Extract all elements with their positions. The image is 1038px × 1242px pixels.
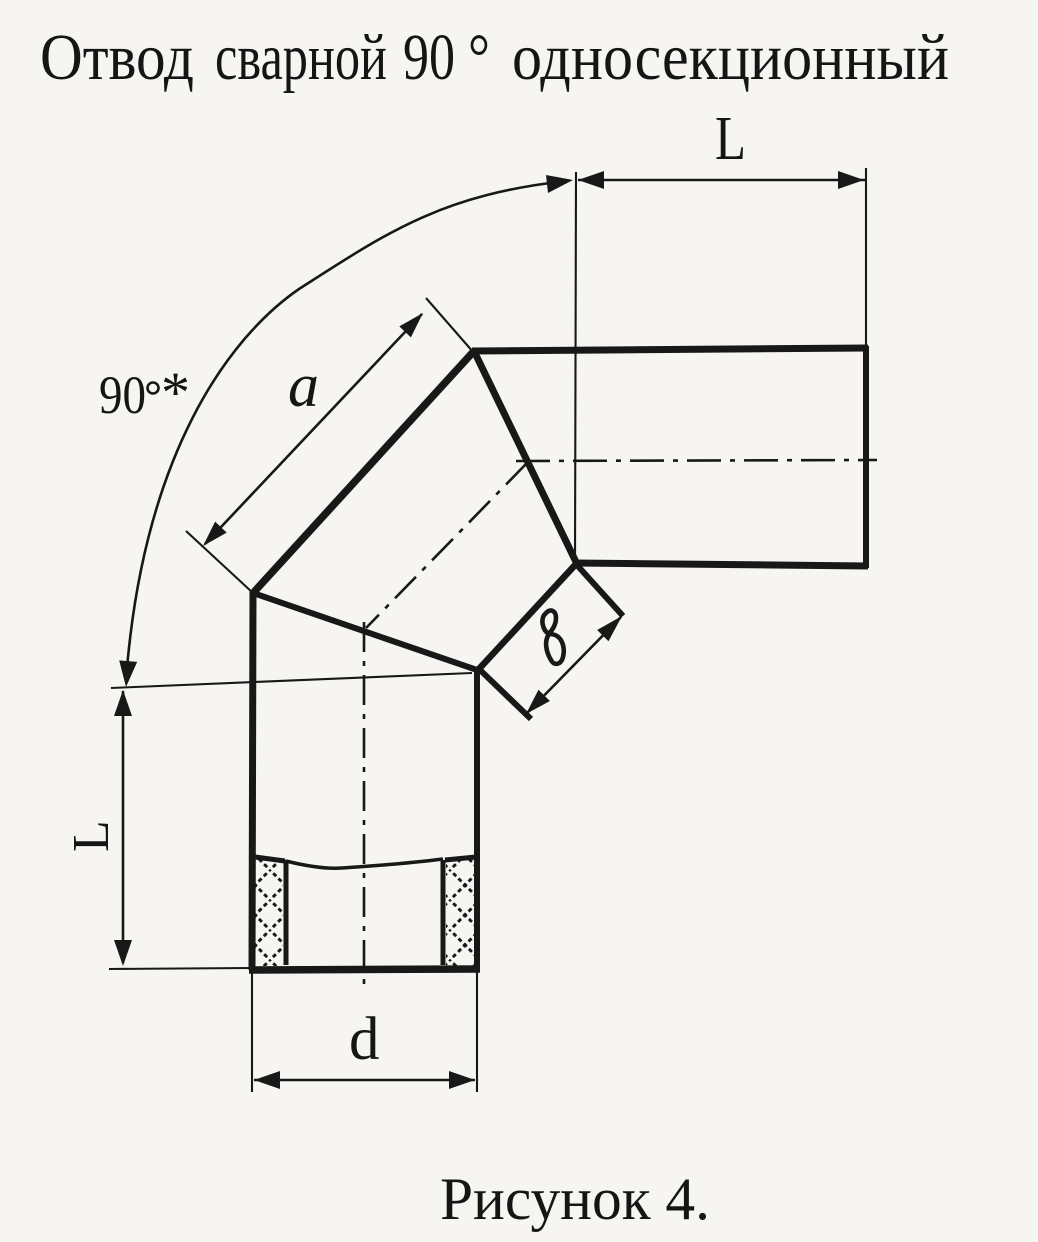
svg-text:°: ° [468,21,490,94]
svg-text:Рисунок 4.: Рисунок 4. [440,1166,710,1232]
svg-text:90: 90 [99,365,146,425]
svg-text:d: d [349,1006,380,1073]
svg-text:*: * [161,360,190,425]
svg-text:L: L [63,820,120,852]
svg-text:Отвод: Отвод [40,21,194,94]
svg-text:сварной: сварной [215,21,387,94]
svg-text:90: 90 [403,21,455,94]
svg-text:a: a [288,352,319,420]
svg-text:односекционный: односекционный [512,21,949,94]
svg-text:L: L [715,105,746,173]
